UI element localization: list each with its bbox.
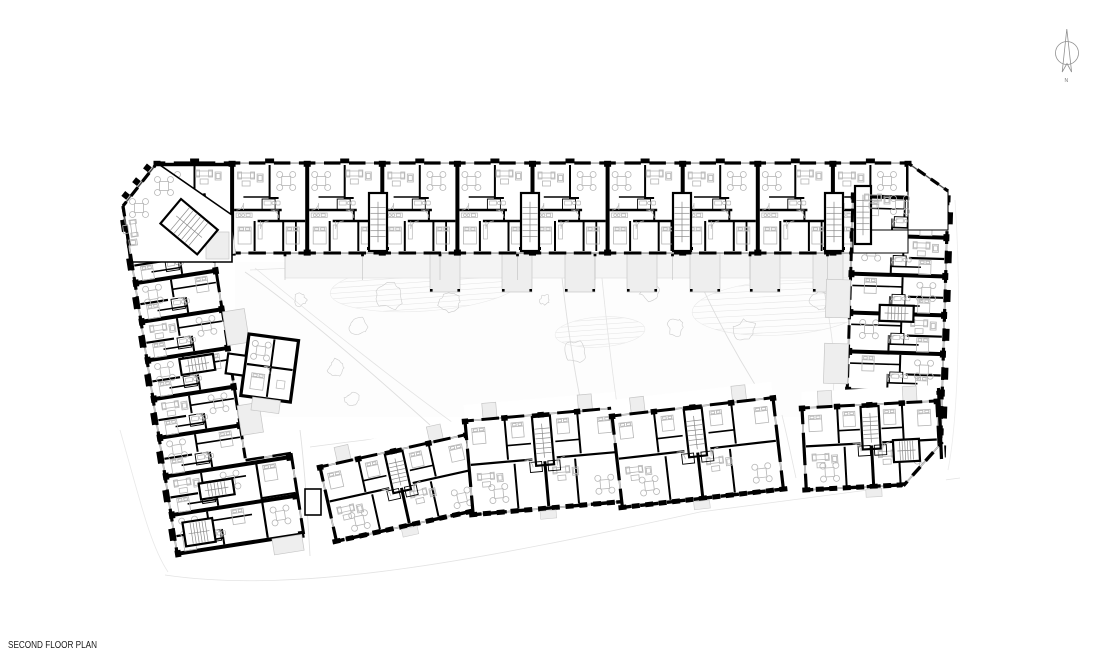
svg-text:N: N — [1065, 78, 1069, 84]
svg-text:SECOND FLOOR PLAN: SECOND FLOOR PLAN — [8, 639, 97, 651]
